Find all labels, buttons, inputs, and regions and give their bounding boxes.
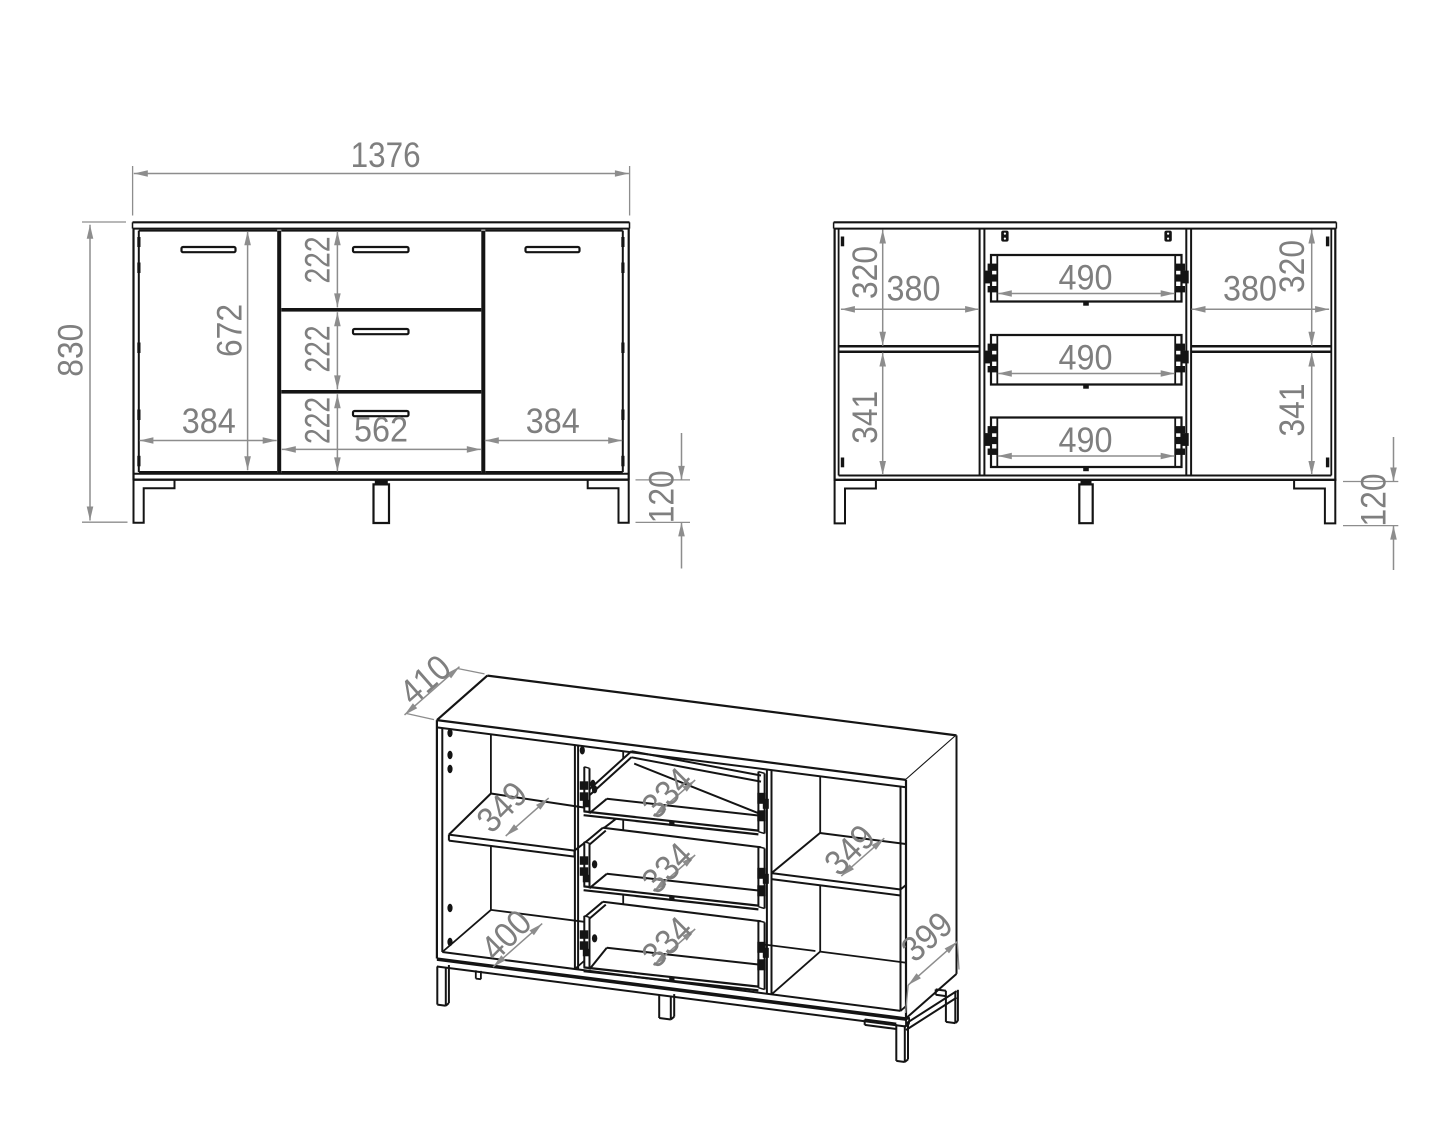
svg-text:1376: 1376 <box>351 135 421 175</box>
svg-text:320: 320 <box>845 246 885 299</box>
svg-text:490: 490 <box>1059 257 1113 297</box>
svg-text:120: 120 <box>1354 474 1394 527</box>
svg-text:490: 490 <box>1059 420 1113 460</box>
svg-text:341: 341 <box>845 391 885 444</box>
svg-text:384: 384 <box>526 401 580 441</box>
svg-text:222: 222 <box>298 397 338 444</box>
svg-text:341: 341 <box>1272 384 1312 437</box>
svg-text:380: 380 <box>887 268 941 308</box>
svg-text:222: 222 <box>298 326 338 373</box>
svg-text:490: 490 <box>1059 337 1113 377</box>
svg-text:672: 672 <box>210 304 250 357</box>
svg-text:562: 562 <box>354 410 408 450</box>
svg-text:120: 120 <box>642 470 682 523</box>
svg-text:320: 320 <box>1272 240 1312 293</box>
svg-text:830: 830 <box>51 324 91 377</box>
svg-text:222: 222 <box>298 237 338 284</box>
svg-text:380: 380 <box>1223 268 1277 308</box>
svg-text:384: 384 <box>182 401 236 441</box>
